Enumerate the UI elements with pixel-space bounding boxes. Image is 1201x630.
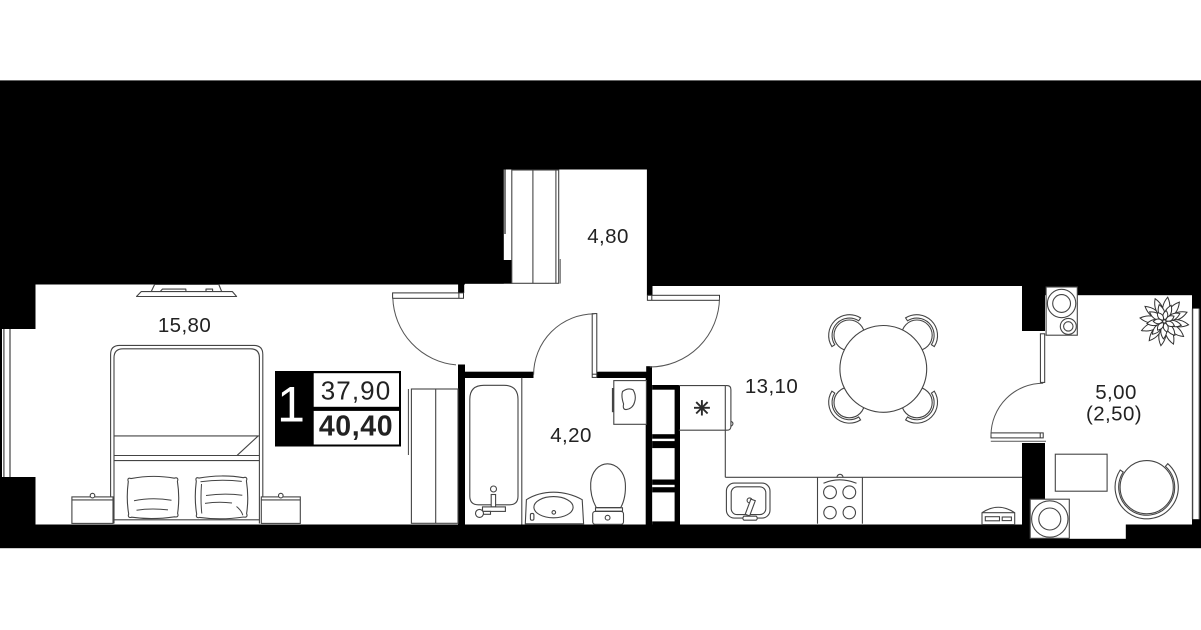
- svg-text:15,80: 15,80: [158, 314, 211, 337]
- svg-text:13,10: 13,10: [745, 375, 798, 398]
- svg-text:(2,50): (2,50): [1086, 403, 1142, 426]
- svg-text:40,40: 40,40: [319, 411, 393, 443]
- svg-text:1: 1: [277, 377, 305, 433]
- svg-text:5,00: 5,00: [1095, 381, 1137, 404]
- svg-text:37,90: 37,90: [321, 375, 392, 405]
- svg-text:4,20: 4,20: [550, 424, 592, 447]
- svg-text:4,80: 4,80: [587, 225, 629, 248]
